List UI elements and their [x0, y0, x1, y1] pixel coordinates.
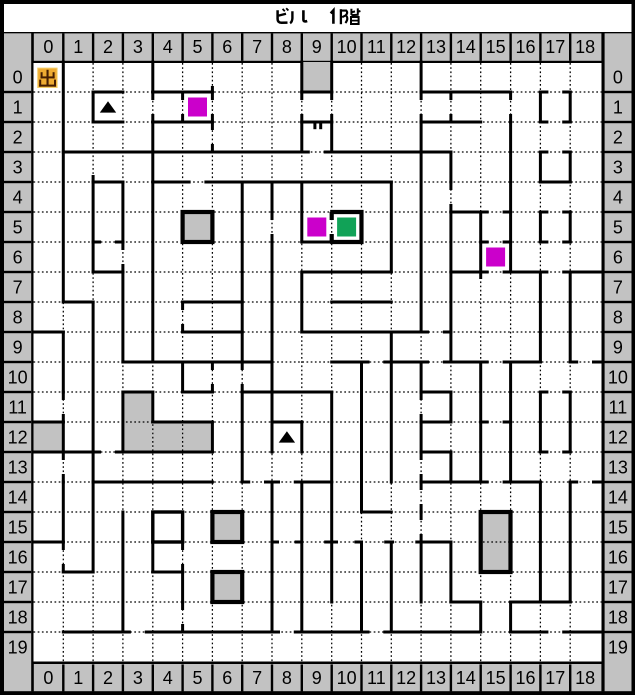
- svg-text:15: 15: [608, 518, 628, 538]
- svg-text:18: 18: [575, 37, 595, 57]
- svg-text:13: 13: [426, 37, 446, 57]
- svg-text:2: 2: [103, 668, 113, 688]
- svg-text:9: 9: [312, 37, 322, 57]
- svg-text:0: 0: [43, 668, 53, 688]
- svg-text:9: 9: [13, 338, 23, 358]
- svg-text:10: 10: [337, 668, 357, 688]
- svg-text:1: 1: [73, 37, 83, 57]
- svg-text:7: 7: [252, 37, 262, 57]
- svg-text:11: 11: [609, 398, 628, 418]
- svg-text:8: 8: [282, 668, 292, 688]
- svg-text:1: 1: [73, 668, 83, 688]
- svg-text:15: 15: [486, 668, 506, 688]
- svg-text:1: 1: [13, 98, 23, 118]
- svg-text:2: 2: [13, 128, 23, 148]
- svg-text:10: 10: [337, 37, 357, 57]
- svg-text:18: 18: [575, 668, 595, 688]
- svg-text:1: 1: [613, 98, 623, 118]
- svg-text:19: 19: [8, 638, 28, 658]
- svg-text:7: 7: [252, 668, 262, 688]
- svg-text:5: 5: [192, 668, 202, 688]
- svg-text:16: 16: [515, 668, 535, 688]
- svg-text:4: 4: [163, 668, 173, 688]
- svg-text:7: 7: [13, 278, 23, 298]
- svg-text:0: 0: [43, 37, 53, 57]
- svg-text:11: 11: [8, 398, 27, 418]
- svg-text:11: 11: [367, 668, 386, 688]
- svg-text:16: 16: [8, 548, 28, 568]
- svg-text:19: 19: [608, 638, 628, 658]
- svg-text:14: 14: [456, 37, 476, 57]
- svg-text:8: 8: [13, 308, 23, 328]
- svg-text:8: 8: [613, 308, 623, 328]
- svg-text:9: 9: [312, 668, 322, 688]
- svg-text:3: 3: [133, 37, 143, 57]
- svg-text:8: 8: [282, 37, 292, 57]
- svg-text:16: 16: [608, 548, 628, 568]
- svg-text:18: 18: [8, 608, 28, 628]
- svg-text:17: 17: [545, 668, 565, 688]
- svg-text:17: 17: [8, 578, 28, 598]
- svg-text:12: 12: [396, 668, 416, 688]
- svg-text:0: 0: [613, 68, 623, 88]
- svg-text:3: 3: [133, 668, 143, 688]
- svg-text:5: 5: [192, 37, 202, 57]
- svg-text:6: 6: [13, 248, 23, 268]
- svg-text:9: 9: [613, 338, 623, 358]
- svg-text:7: 7: [613, 278, 623, 298]
- svg-text:10: 10: [8, 368, 28, 388]
- svg-text:4: 4: [13, 188, 23, 208]
- svg-text:17: 17: [608, 578, 628, 598]
- svg-text:5: 5: [13, 218, 23, 238]
- svg-text:14: 14: [8, 488, 28, 508]
- svg-text:13: 13: [8, 458, 28, 478]
- svg-text:6: 6: [613, 248, 623, 268]
- svg-text:12: 12: [396, 37, 416, 57]
- svg-text:3: 3: [13, 158, 23, 178]
- svg-text:6: 6: [222, 37, 232, 57]
- svg-text:14: 14: [456, 668, 476, 688]
- svg-text:6: 6: [222, 668, 232, 688]
- svg-text:14: 14: [608, 488, 628, 508]
- svg-text:12: 12: [608, 428, 628, 448]
- svg-text:0: 0: [13, 68, 23, 88]
- svg-text:17: 17: [545, 37, 565, 57]
- svg-text:15: 15: [486, 37, 506, 57]
- svg-text:11: 11: [367, 37, 386, 57]
- svg-text:18: 18: [608, 608, 628, 628]
- svg-text:13: 13: [608, 458, 628, 478]
- svg-text:3: 3: [613, 158, 623, 178]
- svg-text:4: 4: [613, 188, 623, 208]
- svg-text:2: 2: [103, 37, 113, 57]
- svg-text:5: 5: [613, 218, 623, 238]
- svg-text:13: 13: [426, 668, 446, 688]
- svg-text:15: 15: [8, 518, 28, 538]
- svg-text:12: 12: [8, 428, 28, 448]
- svg-text:2: 2: [613, 128, 623, 148]
- svg-text:16: 16: [515, 37, 535, 57]
- svg-text:10: 10: [608, 368, 628, 388]
- svg-text:4: 4: [163, 37, 173, 57]
